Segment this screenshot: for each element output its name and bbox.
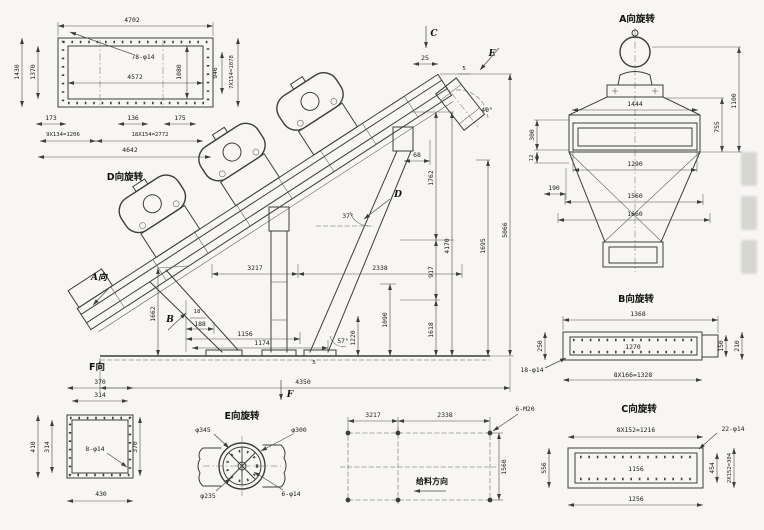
dim-314-left: 314 xyxy=(43,441,51,453)
angle-37: 37° xyxy=(342,212,354,220)
dim-5-bottom: 5 xyxy=(312,360,315,366)
dim-150: 150 xyxy=(717,340,725,352)
section-label-b: B xyxy=(165,315,174,325)
dim-2338-main: 2338 xyxy=(372,264,388,272)
dim-5066: 5066 xyxy=(501,222,509,238)
dim-1090: 1090 xyxy=(381,312,389,328)
dim-7x154: 7X154=1078 xyxy=(229,55,235,89)
dim-8x166: 8X166=1328 xyxy=(614,371,653,379)
dim-1080: 1080 xyxy=(175,64,183,80)
dim-1370: 1370 xyxy=(29,64,37,80)
drawing-page: 4702 1430 1370 78-φ14 4572 1080 946 7X15… xyxy=(0,0,764,530)
dim-1762: 1762 xyxy=(427,170,435,186)
dim-1560-plan: 1560 xyxy=(500,459,508,475)
dim-430: 430 xyxy=(95,490,107,498)
label-holes-22: 22-φ14 xyxy=(721,425,744,433)
dim-8x152: 8X152=1216 xyxy=(617,426,656,434)
dim-4572: 4572 xyxy=(127,73,143,81)
dim-1662: 1662 xyxy=(149,306,157,322)
view-d-title: D向旋转 xyxy=(107,171,144,183)
dim-410: 410 xyxy=(29,441,37,453)
dim-454: 454 xyxy=(708,462,716,474)
section-label-d: D xyxy=(393,190,402,200)
dim-1560: 1560 xyxy=(627,192,643,200)
dim-1100: 1100 xyxy=(730,93,738,109)
dim-2x152: 2X152=304 xyxy=(727,452,733,483)
dim-1174: 1174 xyxy=(254,339,270,347)
engineering-drawing: 4702 1430 1370 78-φ14 4572 1080 946 7X15… xyxy=(0,0,764,530)
dim-9x134: 9X134=1206 xyxy=(46,132,80,138)
dim-phi345: φ345 xyxy=(195,426,211,434)
dim-188: 188 xyxy=(194,320,206,328)
angle-40: 40° xyxy=(481,106,493,114)
section-label-e: E xyxy=(488,49,496,59)
dim-3217-main: 3217 xyxy=(247,264,263,272)
view-f-title: F向 xyxy=(89,361,105,373)
dim-1256: 1256 xyxy=(628,495,644,503)
dim-phi235: φ235 xyxy=(200,492,216,500)
dim-210: 210 xyxy=(733,340,741,352)
feed-direction-label: 给料方向 xyxy=(416,476,448,486)
dim-12: 12 xyxy=(529,155,535,162)
dim-556: 556 xyxy=(540,462,548,474)
dim-1156-c: 1156 xyxy=(628,465,644,473)
dim-4642: 4642 xyxy=(122,146,138,154)
view-b-title: B向旋转 xyxy=(618,293,654,305)
label-holes-6: 6-φ14 xyxy=(281,490,300,498)
dim-2338-plan: 2338 xyxy=(437,411,453,419)
dim-250: 250 xyxy=(536,340,544,352)
dim-370-top: 370 xyxy=(94,378,106,386)
dim-300: 300 xyxy=(528,129,536,141)
dim-136: 136 xyxy=(127,114,139,122)
dim-1220: 1220 xyxy=(349,330,357,346)
label-holes-8: 8-φ14 xyxy=(85,445,104,453)
label-anchor-bolts: 6-M20 xyxy=(515,405,534,413)
section-label-f: F xyxy=(286,390,294,400)
dim-917: 917 xyxy=(427,266,435,278)
dim-4702: 4702 xyxy=(124,16,140,24)
view-a-title: A向旋转 xyxy=(619,13,655,25)
dim-1660: 1660 xyxy=(627,210,643,218)
dim-1270: 1270 xyxy=(625,343,641,351)
dim-175: 175 xyxy=(174,114,186,122)
dim-314-top: 314 xyxy=(94,391,106,399)
label-holes-18: 18-φ14 xyxy=(520,366,543,374)
dim-1368: 1368 xyxy=(630,310,646,318)
dim-755: 755 xyxy=(713,121,721,133)
watermark xyxy=(741,152,757,274)
dim-68: 68 xyxy=(413,151,421,159)
dim-5-top: 5 xyxy=(462,66,465,72)
dim-3217-plan: 3217 xyxy=(365,411,381,419)
dim-1695: 1695 xyxy=(479,238,487,254)
dim-1290: 1290 xyxy=(627,160,643,168)
dim-4170: 4170 xyxy=(443,238,451,254)
dim-1444: 1444 xyxy=(627,100,643,108)
dim-370-right: 370 xyxy=(131,441,139,453)
label-holes-78: 78-φ14 xyxy=(131,53,154,61)
dim-946: 946 xyxy=(211,67,219,79)
dim-phi300: φ300 xyxy=(291,426,307,434)
view-c-title: C向旋转 xyxy=(621,403,657,415)
dim-18x154: 18X154=2772 xyxy=(131,132,168,138)
view-e-title: E向旋转 xyxy=(225,410,260,422)
view-label-a: A向 xyxy=(90,272,108,283)
section-label-c: C xyxy=(430,29,438,39)
dim-25: 25 xyxy=(421,54,429,62)
dim-173: 173 xyxy=(45,114,57,122)
dim-18: 18 xyxy=(194,309,201,315)
dim-190: 190 xyxy=(548,184,560,192)
dim-4350: 4350 xyxy=(295,378,311,386)
dim-1156-main: 1156 xyxy=(237,330,253,338)
dim-1430: 1430 xyxy=(13,64,21,80)
angle-57: 57° xyxy=(337,337,349,345)
dim-1618: 1618 xyxy=(427,322,435,338)
